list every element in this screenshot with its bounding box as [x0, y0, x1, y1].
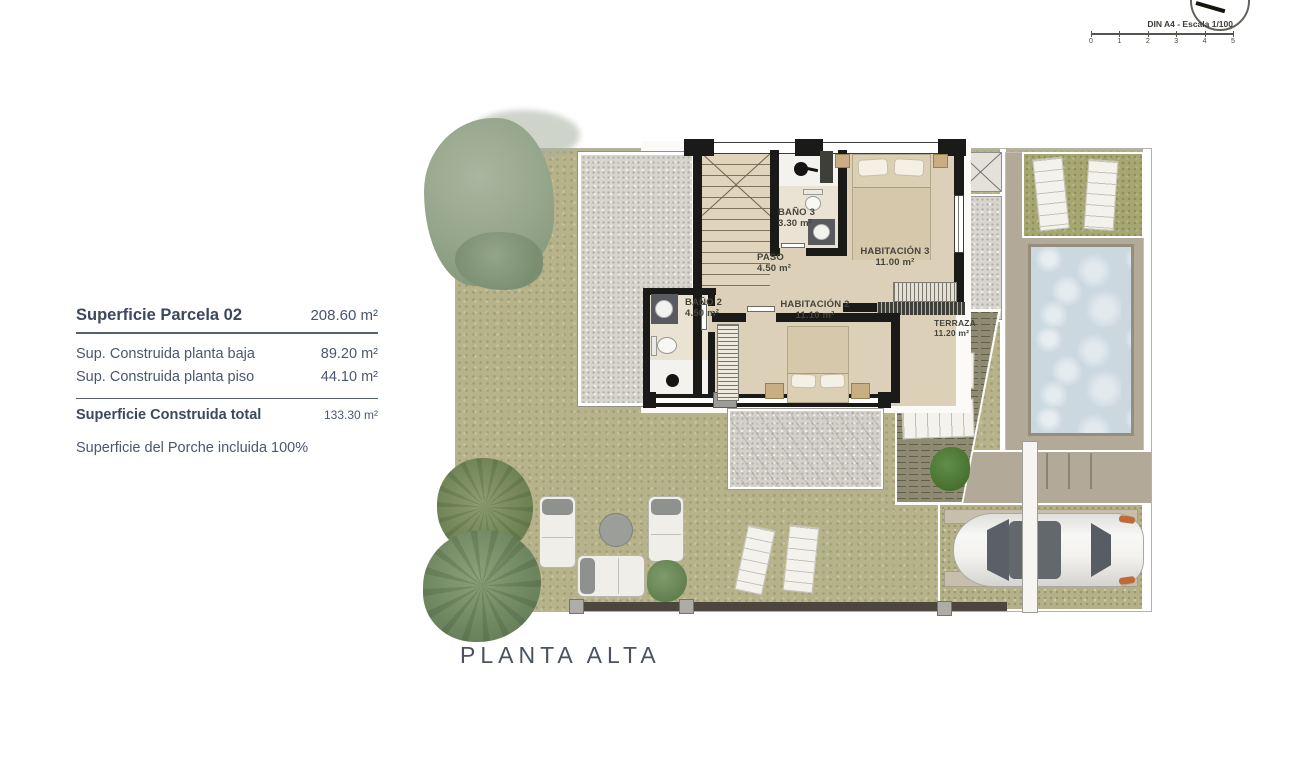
- toilet-bowl: [657, 337, 677, 354]
- wall-pier: [643, 392, 656, 408]
- scale-label: DIN A4 - Escala 1/100: [1100, 19, 1233, 29]
- room-name: PASO: [757, 252, 817, 263]
- sun-lounger: [1084, 159, 1119, 231]
- room-label-bath2: BAÑO 2 4.50 m²: [685, 297, 745, 319]
- nightstand: [851, 383, 870, 399]
- scale-bar-line: [1091, 33, 1233, 35]
- plot-margin: [1143, 149, 1151, 611]
- parcel-area-value: 208.60 m²: [310, 307, 378, 324]
- cushion-seam: [651, 534, 681, 535]
- sink-basin: [655, 300, 673, 318]
- garden-sofa: [648, 496, 684, 562]
- exterior-step: [1090, 453, 1092, 489]
- room-label-terrace: TERRAZA 11.20 m²: [934, 318, 998, 338]
- row-ground-floor-value: 89.20 m²: [321, 343, 378, 366]
- room-area: 11.00 m²: [845, 257, 945, 268]
- room-name: TERRAZA: [934, 318, 998, 328]
- scale-tick-2: 2: [1146, 38, 1150, 45]
- parked-car: [953, 513, 1144, 587]
- room-label-bedroom3: HABITACIÓN 3 11.00 m²: [845, 246, 945, 268]
- room-name: BAÑO 3: [778, 207, 848, 218]
- scale-bar: 0 1 2 3 4 5: [1091, 31, 1233, 47]
- bath2-west-wall: [643, 289, 650, 406]
- floor-plan-page: DIN A4 - Escala 1/100 0 1 2 3 4 5 Superf…: [0, 0, 1315, 778]
- row-ground-floor-label: Sup. Construida planta baja: [76, 343, 255, 366]
- total-built-label: Superficie Construida total: [76, 407, 261, 423]
- room-name: HABITACIÓN 3: [845, 246, 945, 257]
- scale-tick-mark: [1205, 31, 1206, 37]
- row-upper-floor-label: Sup. Construida planta piso: [76, 366, 254, 389]
- scale-tick-mark: [1119, 31, 1120, 37]
- bed-bedroom2: [787, 326, 849, 403]
- shower-screen: [820, 151, 833, 183]
- exterior-step: [1046, 453, 1048, 489]
- porch-roof-gravel: [728, 409, 883, 489]
- divider: [76, 398, 378, 399]
- row-upper-floor-value: 44.10 m²: [321, 366, 378, 389]
- nightstand: [933, 154, 948, 168]
- pillow: [791, 374, 816, 389]
- garden-loveseat: [577, 555, 645, 597]
- scale-tick-mark: [1148, 31, 1149, 37]
- wall-pier: [795, 139, 823, 156]
- bath3-door: [781, 243, 805, 248]
- porch-note: Superficie del Porche incluida 100%: [76, 440, 378, 456]
- stair-wall: [770, 150, 779, 250]
- wardrobe-bedroom3: [893, 282, 957, 302]
- exterior-step: [1068, 453, 1070, 489]
- fence-post: [937, 601, 952, 616]
- pillow: [858, 158, 889, 177]
- wall-pier: [878, 392, 891, 408]
- nightstand: [835, 154, 850, 168]
- room-label-bedroom2: HABITACIÓN 2 11.10 m²: [762, 299, 868, 321]
- room-name: BAÑO 2: [685, 297, 745, 308]
- tree-olive-lobe: [455, 232, 543, 290]
- total-built-value: 133.30 m²: [324, 408, 378, 422]
- scale-tick-mark: [1176, 31, 1177, 37]
- bed-bedroom3: [852, 154, 931, 260]
- room-area: 4.50 m²: [757, 263, 817, 274]
- nightstand: [765, 383, 784, 399]
- scale-tick-mark: [1233, 31, 1234, 37]
- room-name: HABITACIÓN 2: [762, 299, 868, 310]
- scale-tick-0: 0: [1089, 38, 1093, 45]
- garden-sofa: [539, 496, 576, 568]
- swimming-pool: [1028, 244, 1134, 436]
- scale-tick-labels: 0 1 2 3 4 5: [1091, 38, 1233, 46]
- parcel-title: Superficie Parcela 02: [76, 306, 242, 325]
- surface-info-panel: Superficie Parcela 02 208.60 m² Sup. Con…: [76, 306, 378, 456]
- sofa-back: [580, 558, 595, 594]
- plan-title: PLANTA ALTA: [460, 642, 661, 669]
- room-area: 3.30 m²: [778, 218, 848, 229]
- room-label-bath3: BAÑO 3 3.30 m²: [778, 207, 848, 229]
- scale-tick-1: 1: [1117, 38, 1121, 45]
- scale-tick-4: 4: [1203, 38, 1207, 45]
- sofa-back: [542, 499, 573, 515]
- driveway-bush: [930, 447, 970, 491]
- east-wall: [954, 151, 964, 195]
- sofa-back: [651, 499, 681, 515]
- scale-tick-mark: [1091, 31, 1092, 37]
- room-label-hall: PASO 4.50 m²: [757, 252, 817, 274]
- toilet-tank: [803, 189, 823, 195]
- pillow: [894, 158, 925, 177]
- divider: [76, 332, 378, 334]
- wardrobe-bedroom2: [717, 324, 739, 401]
- fence-post: [569, 599, 584, 614]
- cushion-seam: [542, 537, 573, 538]
- west-wall: [693, 150, 702, 407]
- room-area: 4.50 m²: [685, 308, 745, 319]
- fence-post: [679, 599, 694, 614]
- carport-pillar: [1022, 441, 1038, 613]
- shower-drain-icon: [666, 374, 679, 387]
- tree-round: [423, 530, 541, 642]
- bed-duvet: [788, 327, 848, 374]
- room-area: 11.20 m²: [934, 328, 998, 338]
- scale-tick-3: 3: [1174, 38, 1178, 45]
- bedroom2-east-wall: [891, 313, 900, 403]
- coffee-table: [599, 513, 633, 547]
- scale-tick-5: 5: [1231, 38, 1235, 45]
- east-window: [954, 195, 964, 253]
- room-area: 11.10 m²: [762, 310, 868, 321]
- car-taillight: [1119, 576, 1136, 585]
- pillow: [820, 374, 845, 389]
- cushion-seam: [618, 558, 619, 594]
